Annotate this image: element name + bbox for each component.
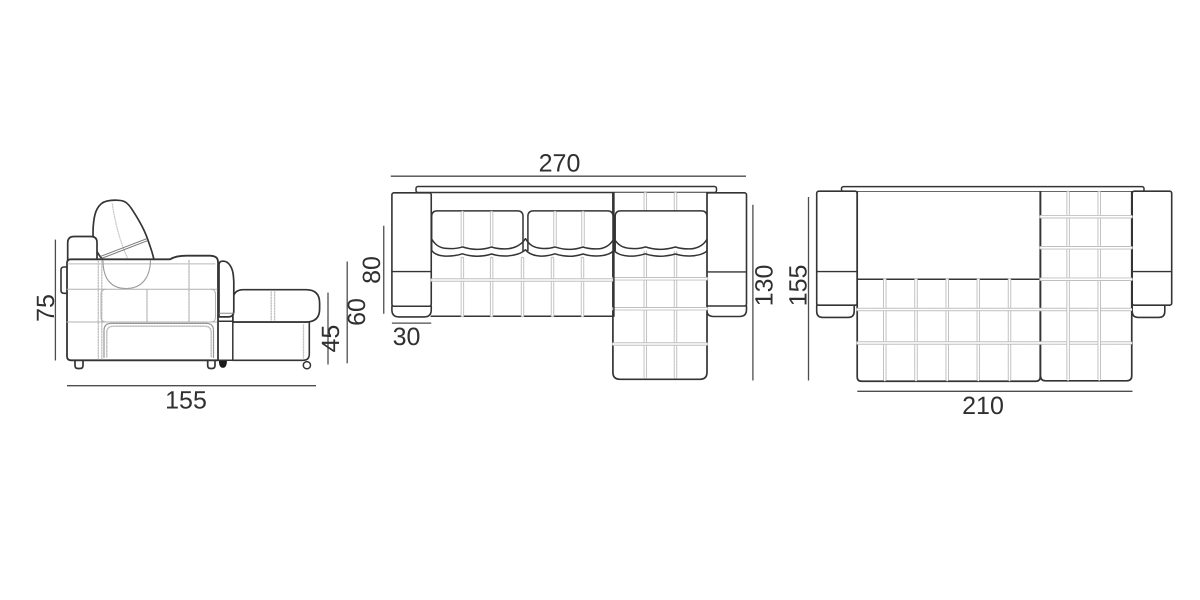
svg-text:80: 80 (358, 256, 386, 284)
svg-text:60: 60 (343, 298, 371, 326)
svg-text:45: 45 (317, 325, 345, 353)
svg-text:155: 155 (165, 387, 207, 415)
svg-text:75: 75 (32, 294, 60, 322)
svg-text:155: 155 (785, 265, 813, 307)
svg-text:130: 130 (751, 265, 779, 307)
svg-text:30: 30 (393, 323, 421, 351)
svg-text:210: 210 (962, 392, 1004, 420)
svg-text:270: 270 (539, 149, 581, 177)
